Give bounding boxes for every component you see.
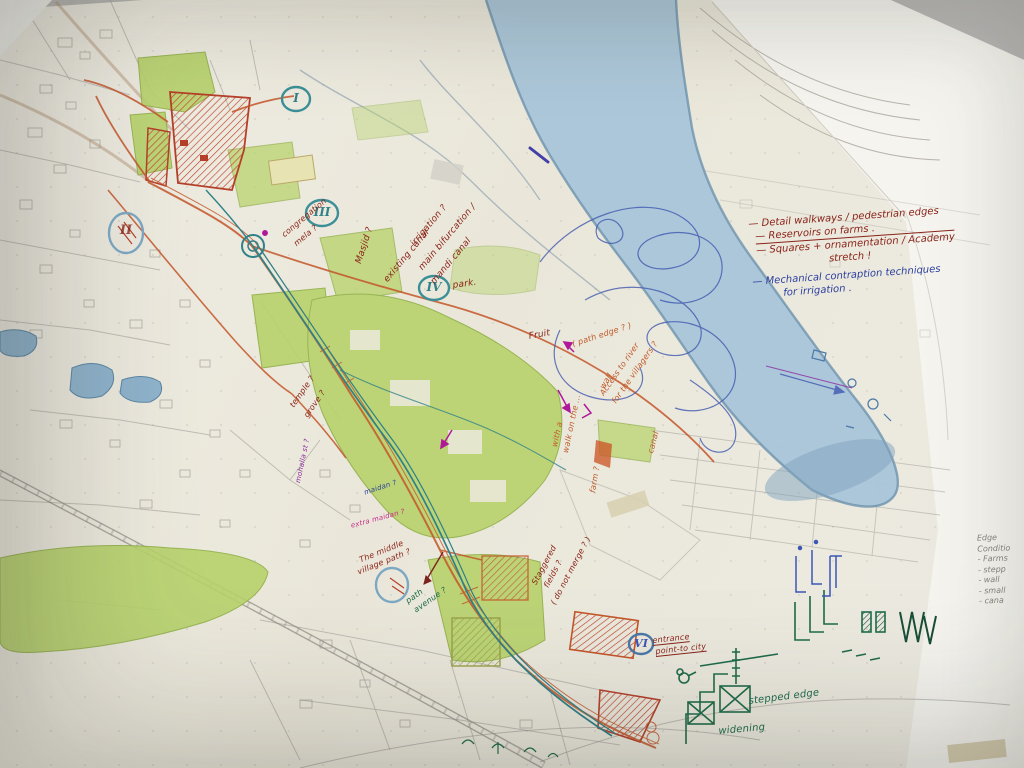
ink-dash [530, 148, 548, 162]
numeral-vi: VI [630, 637, 652, 650]
blue-ink-diagrams [796, 541, 842, 597]
numeral-i: I [284, 91, 308, 105]
photo-of-hand-drawn-plan: { "palette":{"trace_paper":"#ece9dd","un… [0, 0, 1024, 768]
note-line: - cana [979, 595, 1012, 607]
drawing-layer [0, 0, 1024, 768]
edge-conditions-notes: Edge Conditio - Farms - stepp - wall - s… [977, 532, 1013, 607]
note-line: - Farms [977, 553, 1010, 565]
numeral-ii: II [112, 223, 140, 238]
notes-top-right: — Detail walkways / pedestrian edges — R… [748, 204, 958, 302]
lakes [0, 330, 162, 403]
